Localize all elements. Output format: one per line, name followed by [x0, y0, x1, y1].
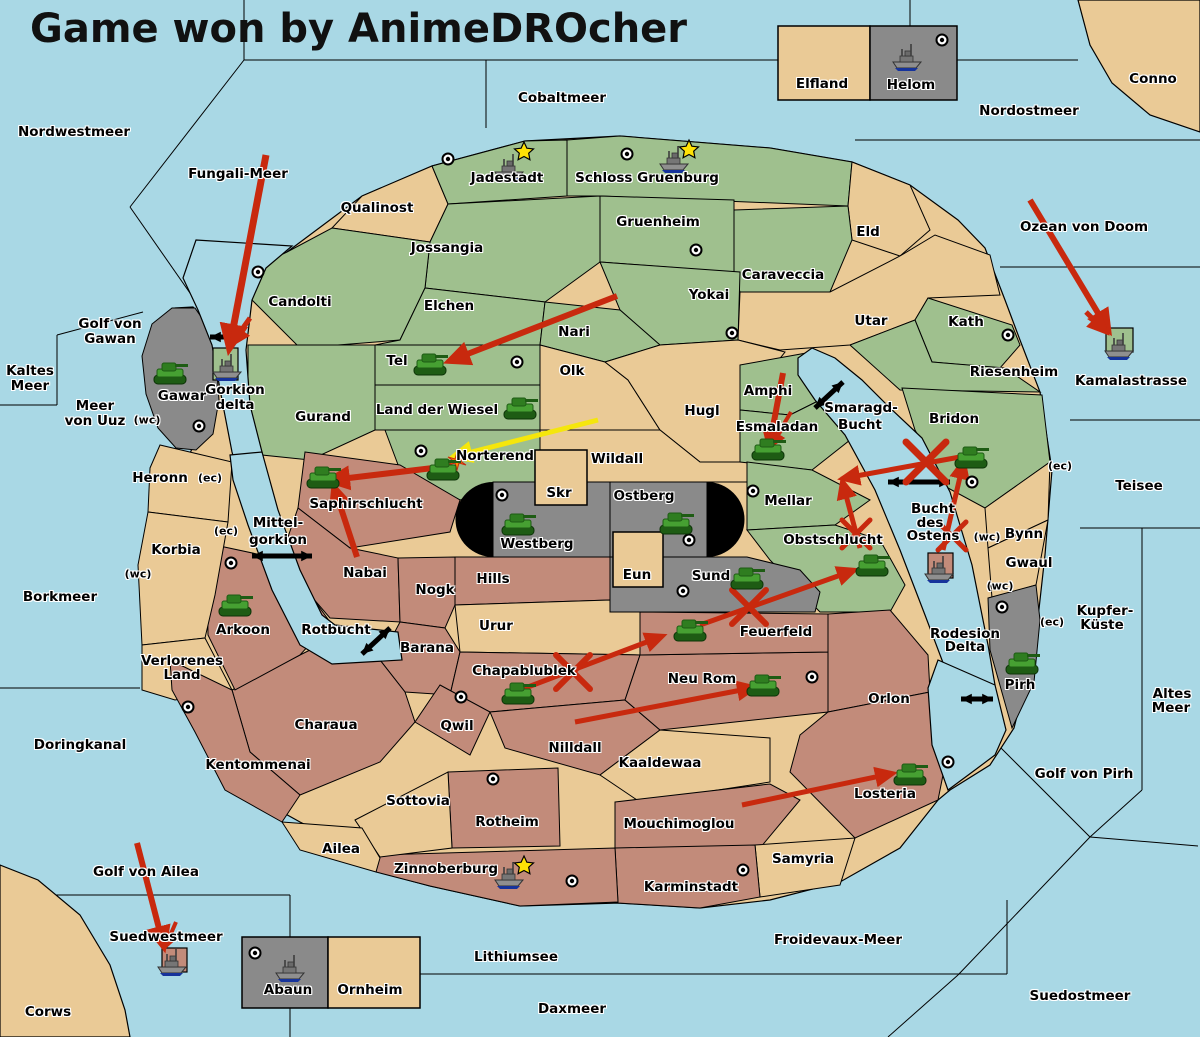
city-icon [738, 865, 749, 876]
territory-karminstadt[interactable] [615, 845, 760, 908]
city-icon [456, 692, 467, 703]
city-icon [488, 774, 499, 785]
city-icon [497, 490, 508, 501]
ornheim-box[interactable] [328, 937, 420, 1008]
city-icon [678, 586, 689, 597]
city-icon [226, 558, 237, 569]
city-icon [416, 446, 427, 457]
city-icon [512, 357, 523, 368]
city-icon [691, 245, 702, 256]
city-icon [250, 948, 261, 959]
city-icon [727, 328, 738, 339]
city-icon [748, 486, 759, 497]
territory-caraveccia[interactable] [734, 206, 852, 292]
map-canvas [0, 0, 1200, 1037]
city-icon [622, 149, 633, 160]
city-icon [443, 154, 454, 165]
city-icon [997, 602, 1008, 613]
game-map: NordwestmeerCobaltmeerNordostmeerConnoEl… [0, 0, 1200, 1037]
territory-gruenheim[interactable] [600, 196, 734, 272]
elfland-box[interactable] [778, 26, 870, 100]
city-icon [684, 535, 695, 546]
city-icon [194, 421, 205, 432]
eun-box[interactable] [613, 532, 663, 587]
territory-rotheim[interactable] [448, 768, 560, 848]
skr-box[interactable] [535, 450, 587, 505]
territory-hills[interactable] [455, 557, 610, 605]
city-icon [567, 876, 578, 887]
city-icon [937, 35, 948, 46]
city-icon [183, 702, 194, 713]
territory-nogk[interactable] [398, 557, 455, 628]
city-icon [807, 672, 818, 683]
page-title: Game won by AnimeDROcher [30, 6, 687, 52]
city-icon [967, 477, 978, 488]
city-icon [943, 757, 954, 768]
city-icon [253, 267, 264, 278]
city-icon [1003, 330, 1014, 341]
